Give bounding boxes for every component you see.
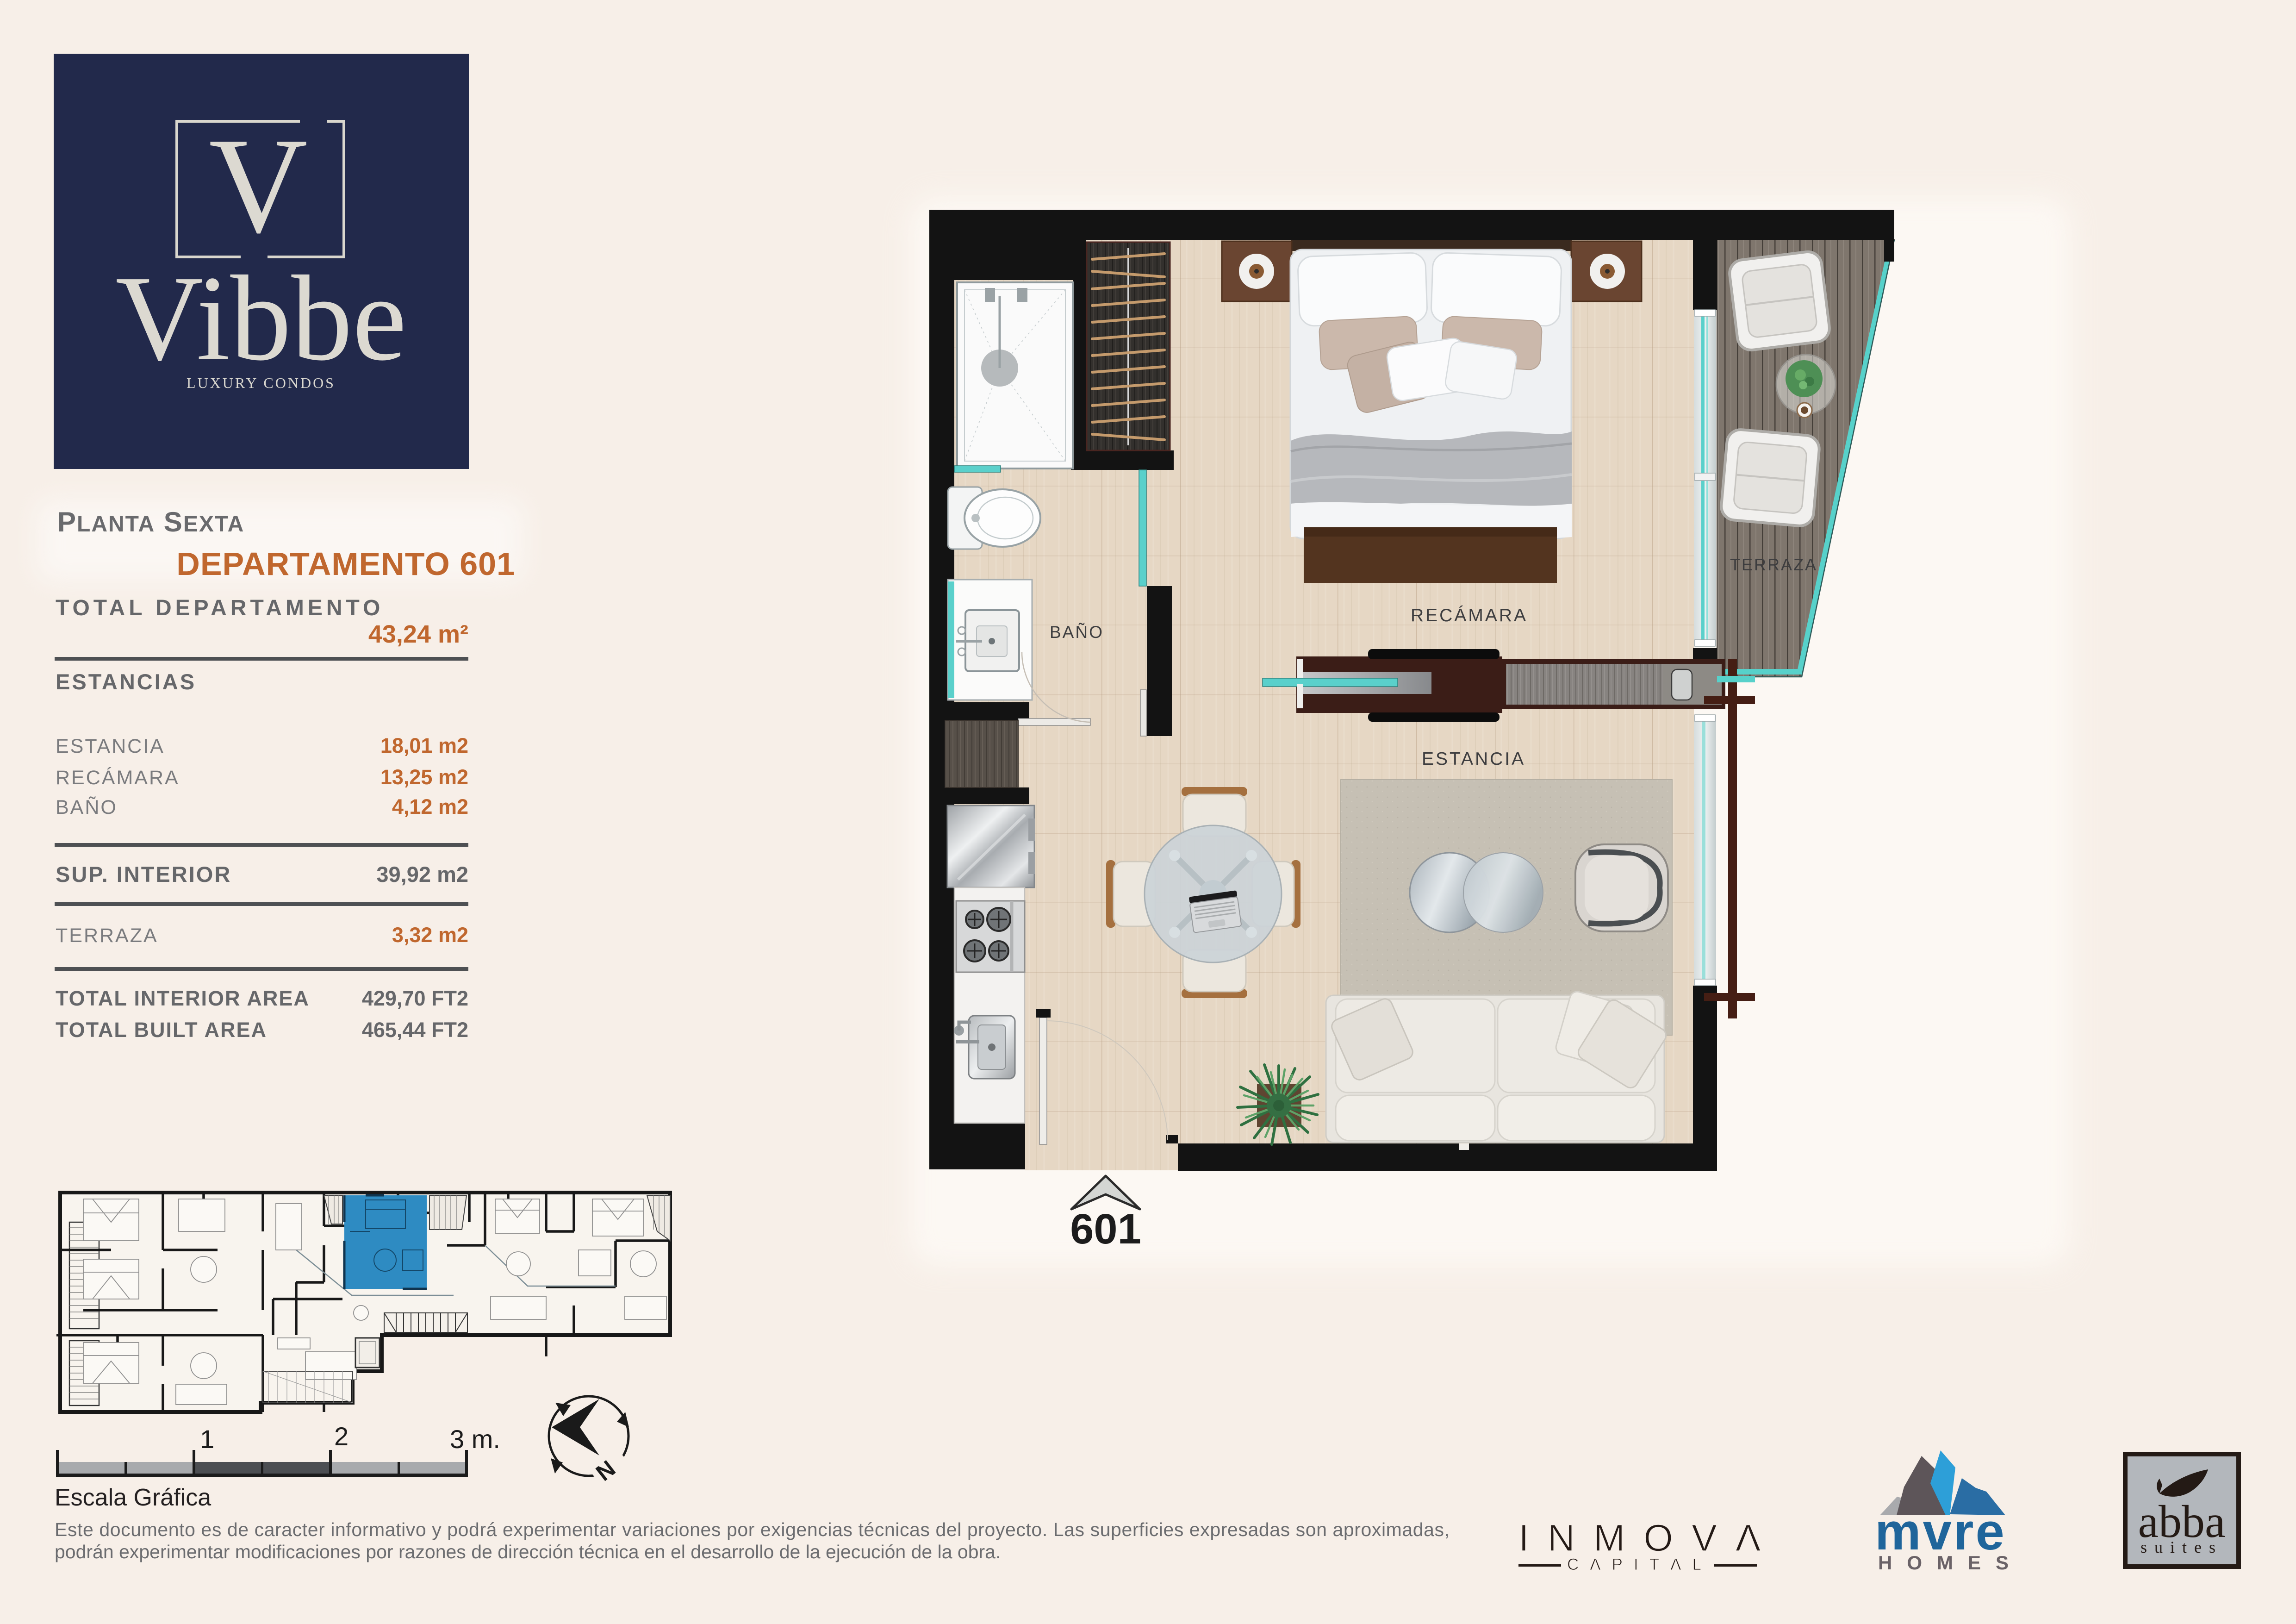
svg-text:HOMES: HOMES — [1878, 1552, 2023, 1574]
svg-text:ESTANCIA: ESTANCIA — [56, 735, 165, 757]
svg-text:429,70 FT2: 429,70 FT2 — [362, 987, 468, 1010]
svg-text:Escala Gráfica: Escala Gráfica — [55, 1484, 211, 1511]
svg-text:CΛPITΛL: CΛPITΛL — [1567, 1555, 1712, 1574]
svg-text:TOTAL BUILT AREA: TOTAL BUILT AREA — [56, 1018, 267, 1042]
svg-text:TOTAL INTERIOR AREA: TOTAL INTERIOR AREA — [56, 987, 310, 1010]
svg-text:INMOVΛ: INMOVΛ — [1518, 1517, 1780, 1559]
svg-text:3 m.: 3 m. — [450, 1424, 500, 1454]
svg-text:LUXURY CONDOS: LUXURY CONDOS — [187, 375, 336, 391]
svg-text:BAÑO: BAÑO — [1050, 623, 1104, 642]
svg-text:RECÁMARA: RECÁMARA — [56, 767, 180, 789]
svg-text:ESTANCIA: ESTANCIA — [1422, 749, 1525, 769]
svg-text:3,32 m2: 3,32 m2 — [392, 923, 468, 947]
svg-text:BAÑO: BAÑO — [56, 796, 118, 818]
svg-text:ESTANCIAS: ESTANCIAS — [56, 669, 196, 694]
svg-text:4,12 m2: 4,12 m2 — [392, 795, 468, 818]
svg-text:2: 2 — [334, 1422, 348, 1451]
svg-text:TERRAZA: TERRAZA — [56, 924, 158, 947]
svg-text:39,92 m2: 39,92 m2 — [376, 862, 468, 887]
svg-text:465,44 FT2: 465,44 FT2 — [362, 1018, 468, 1042]
svg-text:601: 601 — [1070, 1206, 1141, 1253]
svg-text:18,01 m2: 18,01 m2 — [380, 734, 468, 757]
svg-text:RECÁMARA: RECÁMARA — [1411, 606, 1528, 625]
svg-text:1: 1 — [200, 1424, 214, 1454]
svg-text:Este documento es de caracter: Este documento es de caracter informativ… — [55, 1519, 1450, 1540]
svg-text:TOTAL DEPARTAMENTO: TOTAL DEPARTAMENTO — [56, 596, 384, 620]
svg-text:Vibbe: Vibbe — [115, 251, 406, 386]
svg-text:DEPARTAMENTO 601: DEPARTAMENTO 601 — [176, 546, 515, 582]
svg-text:suites: suites — [2140, 1538, 2223, 1556]
svg-text:V: V — [209, 110, 308, 262]
svg-text:SUP. INTERIOR: SUP. INTERIOR — [56, 862, 231, 887]
svg-text:43,24 m²: 43,24 m² — [368, 620, 468, 648]
svg-text:TERRAZA: TERRAZA — [1730, 555, 1817, 574]
svg-text:13,25 m2: 13,25 m2 — [380, 765, 468, 789]
svg-text:podrán experimentar modificaci: podrán experimentar modificaciones por r… — [55, 1541, 1001, 1562]
